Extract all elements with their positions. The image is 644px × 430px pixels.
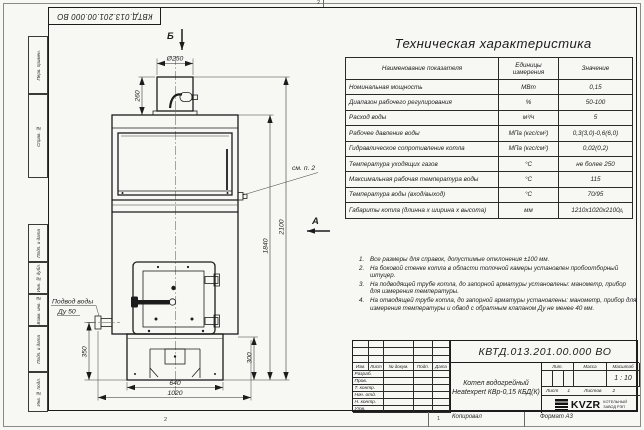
scale-value: 1 : 10 [607, 371, 640, 387]
spec-header-units: Единицы измерения [499, 58, 559, 80]
spec-row: Температура уходящих газов°Сне более 250 [346, 156, 633, 171]
drawing-sheet: 2 2 1 А КВТД.013.201.00.000 ВО Перв. при… [0, 0, 644, 430]
boiler-base [127, 334, 223, 380]
dim-label-base-width: 640 [169, 380, 181, 387]
bottom-margin-divider [524, 412, 525, 427]
row-razrab: Разраб. [353, 371, 384, 378]
row-prov: Пров. [353, 378, 384, 385]
callout-see-note-2: см. п. 2 [292, 165, 315, 172]
furnace-door [131, 262, 220, 334]
spec-row: Температура воды (вход/выход)°С70/95 [346, 187, 633, 202]
col-izm: Изм. [353, 363, 369, 371]
title-block: КВТД.013.201.00.000 ВО Изм. Лист № докум… [352, 340, 638, 412]
signature-header-row: Изм. Лист № докум. Подп. Дата [353, 363, 450, 371]
sheet-label: Лист [546, 389, 558, 394]
water-inlet-dn-label: Ду 50 [57, 309, 76, 316]
signature-rows: Разраб. Пров. Т. контр. Нач. отд. Н. кон… [353, 371, 450, 413]
dim-label-body-height: 1840 [263, 238, 270, 253]
spec-row: Гидравлическое сопротивление котлаМПа (к… [346, 141, 633, 156]
note-item: 1.Все размеры для справок, допустимые от… [355, 256, 637, 263]
product-name-line2: Heatexpert КВр-0,15 КБД(К) [452, 388, 540, 398]
spec-row: Расход водым³/ч5 [346, 110, 633, 125]
title-block-right: Лит. Масса Масштаб 1 : 10 Лист 1 Листов … [541, 363, 639, 413]
view-b-label: Б [167, 31, 174, 42]
boiler-front-view-drawing: Б Ø250 260 [40, 15, 340, 415]
view-a-label: А [311, 216, 319, 227]
row-nkontr: Н. контр. [353, 399, 384, 406]
mass-label: Масса [574, 363, 607, 371]
spec-header-name: Наименование показателя [346, 58, 499, 80]
doc-number: КВТД.013.201.00.000 ВО [450, 341, 639, 363]
spec-row: Максимальная рабочая температура воды°С1… [346, 172, 633, 187]
dim-inlet-height [85, 323, 128, 381]
company-logo: KVZR КОТЕЛЬНЫЙ ЗАВОД РЭП [542, 396, 640, 413]
notes-list: 1.Все размеры для справок, допустимые от… [355, 256, 637, 313]
spec-row: Номинальная мощностьМВт0,15 [346, 80, 633, 95]
col-dokum: № докум. [384, 363, 414, 371]
product-name-line1: Котел водогрейный [463, 379, 529, 389]
dim-label-total-height: 2100 [279, 219, 286, 235]
kvzr-logo-subtext: КОТЕЛЬНЫЙ ЗАВОД РЭП [603, 400, 627, 409]
dim-label-chimney-height: 260 [135, 90, 142, 103]
chimney [153, 77, 198, 115]
note-item: 2.На боковой стенке котла в области топо… [355, 265, 637, 280]
copied-label: Копировал [452, 414, 482, 420]
dim-label-inlet-height: 350 [82, 346, 89, 358]
format-label: Формат А3 [540, 414, 573, 420]
zone-tick-top [323, 0, 324, 7]
note-item: 3.На подводящей трубе котла, до запорной… [355, 281, 637, 296]
lit-label: Лит. [542, 363, 574, 371]
spec-table: Наименование показателя Единицы измерени… [345, 57, 633, 219]
row-nachotd: Нач. отд. [353, 392, 384, 399]
col-podp: Подп. [414, 363, 433, 371]
col-list: Лист [369, 363, 384, 371]
boiler-body [112, 115, 238, 334]
spec-header-row: Наименование показателя Единицы измерени… [346, 58, 633, 80]
dim-label-right-height: 300 [247, 352, 254, 364]
scale-label: Масштаб [607, 363, 640, 371]
spec-table-title: Техническая характеристика [350, 36, 636, 51]
spec-row: Рабочее давление водыМПа (кгс/см²)0,3(3,… [346, 126, 633, 141]
mass-value [574, 371, 607, 387]
zone-mark-bottom: 2 [164, 417, 167, 423]
sheets-label: Листов [584, 389, 601, 394]
zone-mark-bottom-right: 1 [437, 416, 440, 422]
dim-label-total-width: 1020 [167, 390, 182, 397]
zone-mark-top: 2 [317, 0, 320, 6]
lit-mass-scale-values: 1 : 10 [542, 371, 640, 387]
kvzr-logo-text: KVZR [571, 399, 600, 411]
lit-mass-scale-header: Лит. Масса Масштаб [542, 363, 640, 371]
col-data: Дата [433, 363, 450, 371]
row-utv: Утв. [353, 406, 384, 413]
spec-row: Габариты котла (длинна х ширина х высота… [346, 203, 633, 218]
spec-header-value: Значение [559, 58, 633, 80]
dim-label-chimney-diameter: Ø250 [166, 56, 184, 63]
revision-table [353, 341, 450, 363]
bottom-margin-divider [428, 412, 429, 427]
note-item: 4.На отводящей трубе котла, до запорной … [355, 297, 637, 312]
sampling-fitting [238, 173, 318, 201]
row-tkontr: Т. контр. [353, 385, 384, 392]
sheet-count-row: Лист 1 Листов 2 [542, 387, 640, 396]
spec-row: Диапазон рабочего регулирования%50-100 [346, 95, 633, 110]
sheets-value: 2 [613, 389, 616, 394]
sheet-value: 1 [567, 389, 570, 394]
kvzr-logo-icon [555, 399, 568, 410]
product-name: Котел водогрейный Heatexpert КВр-0,15 КБ… [450, 363, 541, 413]
water-inlet-label: Подвод воды [52, 298, 93, 306]
